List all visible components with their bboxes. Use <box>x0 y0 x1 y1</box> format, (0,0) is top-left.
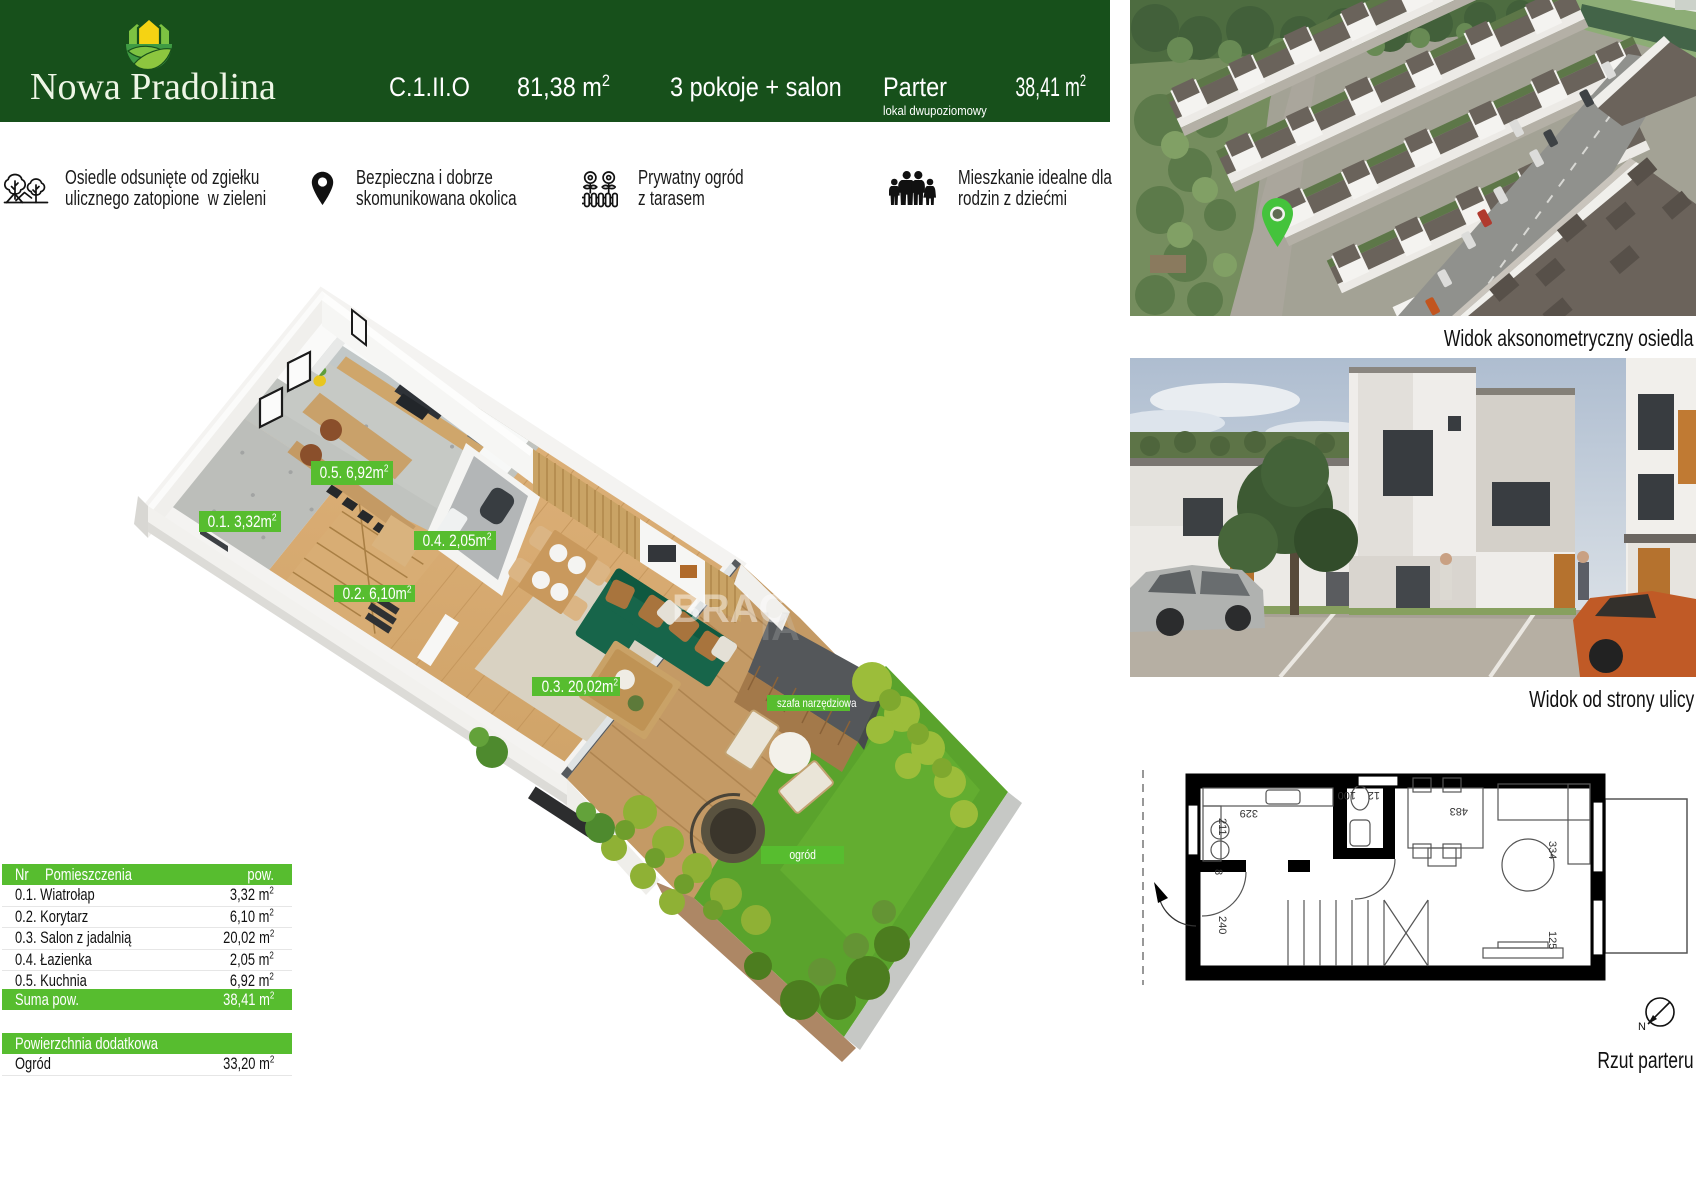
svg-text:334: 334 <box>1546 841 1558 859</box>
svg-text:240: 240 <box>1216 916 1228 934</box>
svg-text:12: 12 <box>1368 789 1380 801</box>
svg-text:IA: IA <box>760 605 800 649</box>
svg-text:125: 125 <box>1546 931 1558 949</box>
svg-text:211: 211 <box>1216 818 1228 836</box>
svg-text:483: 483 <box>1450 805 1468 817</box>
svg-text:N: N <box>1638 1021 1646 1033</box>
svg-text:329: 329 <box>1240 807 1258 819</box>
svg-text:8: 8 <box>1212 869 1224 875</box>
svg-text:100: 100 <box>1338 789 1356 801</box>
